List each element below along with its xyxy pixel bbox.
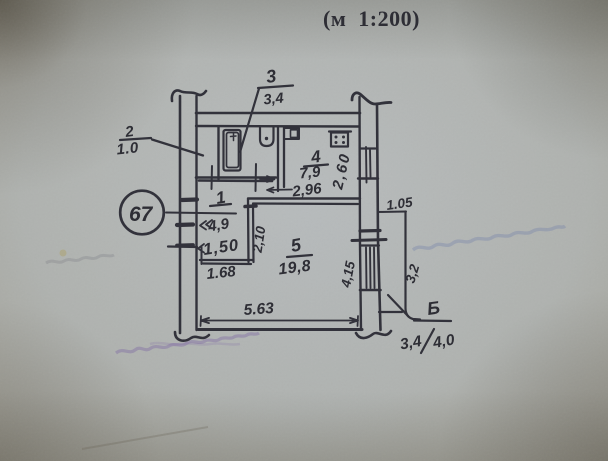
svg-text:(м 1:200): (м 1:200) bbox=[323, 6, 420, 31]
svg-text:1.0: 1.0 bbox=[116, 139, 140, 158]
svg-text:1.68: 1.68 bbox=[206, 263, 237, 283]
svg-text:4,9: 4,9 bbox=[206, 215, 231, 235]
svg-text:3,4: 3,4 bbox=[263, 90, 285, 108]
svg-text:67: 67 bbox=[129, 203, 154, 226]
svg-text:5.63: 5.63 bbox=[243, 300, 275, 319]
